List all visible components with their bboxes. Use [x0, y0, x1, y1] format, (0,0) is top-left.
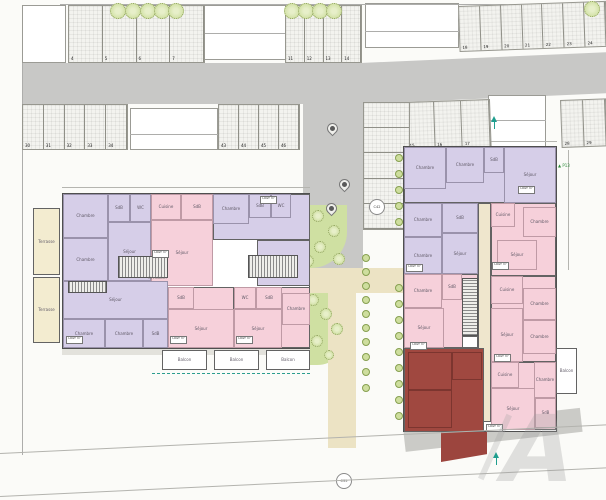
parking-stall-number: 44 — [241, 143, 246, 148]
path-vertical — [328, 293, 356, 448]
room-label: SdB — [490, 158, 498, 162]
parking-stall: 21 — [522, 4, 544, 49]
neighbor-line — [365, 31, 459, 32]
parking-stall-number: 7 — [172, 56, 175, 61]
shrub — [395, 364, 403, 372]
parking-stall-number: 29 — [586, 140, 591, 145]
room-label: Séjour — [195, 327, 208, 331]
unit — [408, 390, 452, 428]
room-label: Terrasse — [38, 308, 55, 312]
shrub — [395, 316, 403, 324]
room-label: Chambre — [76, 258, 94, 262]
tree — [312, 210, 324, 222]
neighbor-building — [22, 5, 66, 63]
tree — [584, 1, 600, 17]
stair-core — [118, 256, 168, 278]
parking-stall: 46 — [279, 105, 299, 149]
room-label: SdB — [448, 285, 456, 289]
pin-dot — [328, 205, 335, 212]
room-sdb: SdB — [143, 319, 168, 348]
room-chambre: Chambre — [523, 207, 556, 237]
shrub — [395, 284, 403, 292]
stair-core — [462, 278, 478, 336]
room-label: Chambre — [287, 307, 305, 311]
stair-core — [68, 281, 107, 293]
parking-stall: 14 — [342, 6, 361, 62]
unit — [452, 352, 482, 380]
unit-label-box: LOGT m² — [170, 336, 187, 344]
parking-stall: 45 — [259, 105, 279, 149]
shrub — [362, 353, 370, 361]
parking-stall: 31 — [44, 105, 65, 149]
parking-stall: 23 — [563, 3, 585, 48]
unit-label-box: LOGT m² — [492, 262, 509, 270]
room-balcon: Balcon — [162, 350, 207, 370]
parking-stall: 34 — [106, 105, 127, 149]
tree — [320, 308, 332, 320]
unit-label-box: LOGT m² — [260, 196, 277, 204]
room-label: Séjour — [454, 252, 467, 256]
room-label: Balcon — [560, 369, 574, 373]
room-terrasse: Terrasse — [33, 277, 60, 343]
room-label: Chambre — [115, 332, 133, 336]
room-label: Balcon — [230, 358, 244, 362]
parking-stall-number: 24 — [587, 40, 592, 45]
parking-stall-number: 12 — [307, 56, 312, 61]
unit-label-box: LOGT m² — [494, 354, 511, 362]
room-sjour: Séjour — [442, 233, 478, 274]
arrow-stem — [494, 122, 495, 129]
room-label: Séjour — [511, 253, 524, 257]
room-cuisine: Cuisine — [491, 276, 523, 304]
neighbor-line — [200, 33, 286, 34]
parking-stall-number: 23 — [567, 41, 572, 46]
dim-line — [62, 187, 310, 188]
parking-stall: 32 — [65, 105, 86, 149]
room-label: SdB — [115, 206, 123, 210]
parking-stall: 18 — [459, 6, 481, 51]
parking-stall-number: 13 — [326, 56, 331, 61]
parking-stall: 22 — [542, 3, 564, 48]
stalls-28-29: 2829 — [560, 98, 606, 148]
site-plan-canvas: 4567111213141819202122232430313233344344… — [0, 0, 606, 500]
room-chambre: Chambre — [404, 203, 442, 237]
unit-label-box: LOGT m² — [236, 336, 253, 344]
shrub — [395, 396, 403, 404]
neighbor-building — [365, 3, 459, 48]
tree — [168, 3, 184, 19]
tree — [125, 3, 141, 19]
tree — [328, 225, 340, 237]
shrub — [362, 254, 370, 262]
parking-stall-number: 30 — [25, 143, 30, 148]
room-label: Chambre — [530, 220, 548, 224]
shrub — [395, 202, 403, 210]
unit — [462, 336, 478, 348]
room-label: SdB — [193, 205, 201, 209]
shrub — [362, 324, 370, 332]
parking-stall-number: 22 — [546, 42, 551, 47]
shrub — [362, 338, 370, 346]
room-wc: WC — [234, 287, 256, 309]
room-chambre: Chambre — [213, 194, 249, 224]
plan-text: Circulation — [148, 277, 167, 281]
room-label: Séjour — [252, 327, 265, 331]
parking-stall-number: 11 — [288, 56, 293, 61]
room-sdb: SdB — [168, 287, 194, 309]
room-label: Balcon — [178, 358, 192, 362]
unit-label-box: LOGT m² — [152, 250, 169, 258]
room-balcon: Balcon — [266, 350, 310, 370]
parking-stall-number: 28 — [564, 141, 569, 146]
room-cuisine: Cuisine — [151, 194, 181, 220]
shrub — [362, 268, 370, 276]
parking-stall-number: 6 — [139, 56, 142, 61]
parking-stall-number: 21 — [525, 43, 530, 48]
room-label: Cuisine — [500, 288, 515, 292]
room-cuisine: Cuisine — [491, 203, 515, 227]
parking-stall: 20 — [501, 5, 523, 50]
dim-line — [568, 150, 569, 270]
room-label: WC — [137, 206, 144, 210]
parking-stall: 19 — [480, 6, 502, 51]
room-label: Séjour — [501, 333, 514, 337]
parking-stall: 29 — [583, 99, 606, 146]
unit-label-box: LOGT m² — [410, 342, 427, 350]
shrub — [395, 332, 403, 340]
tree — [110, 3, 126, 19]
room-label: Balcon — [281, 358, 295, 362]
shrub — [395, 154, 403, 162]
stalls-43-46: 43444546 — [218, 104, 300, 150]
room-label: Chambre — [456, 163, 474, 167]
shrub — [395, 412, 403, 420]
room-balcon: Balcon — [556, 348, 577, 394]
room-label: Chambre — [414, 289, 432, 293]
parking-stall-number: 32 — [67, 143, 72, 148]
parking-stall: 33 — [85, 105, 106, 149]
room-label: Chambre — [530, 302, 548, 306]
unit-label-box: LOGT m² — [518, 186, 535, 194]
room-label: SdB — [265, 296, 273, 300]
shrub — [395, 186, 403, 194]
room-chambre: Chambre — [282, 293, 310, 325]
stalls-30-34: 3031323334 — [22, 104, 128, 150]
road-top-left — [22, 63, 365, 104]
pin-dot — [341, 181, 348, 188]
room-label: Cuisine — [496, 213, 511, 217]
room-chambre: Chambre — [105, 319, 143, 348]
stalls-15-17: 151617 — [405, 99, 492, 150]
room-balcon: Balcon — [214, 350, 259, 370]
room-label: Séjour — [176, 251, 189, 255]
room-chambre: Chambre — [523, 288, 556, 320]
room-label: WC — [242, 296, 249, 300]
room-label: SdB — [256, 204, 264, 208]
shrub — [362, 310, 370, 318]
room-sdb: SdB — [256, 287, 282, 309]
parking-stall: 44 — [239, 105, 259, 149]
room-terrasse: Terrasse — [33, 208, 60, 275]
neighbor-building — [130, 108, 218, 150]
parking-stall-number: 43 — [221, 143, 226, 148]
tree — [311, 335, 323, 347]
limit-dashed-line — [152, 373, 310, 374]
room-sdb: SdB — [484, 147, 504, 173]
room-label: Séjour — [418, 326, 431, 330]
room-cuisine: Cuisine — [491, 362, 519, 388]
room-chambre: Chambre — [63, 194, 108, 238]
parking-stall: 16 — [434, 101, 463, 148]
shrub — [395, 300, 403, 308]
room-chambre: Chambre — [63, 238, 108, 281]
unit-label-box: LOGT m² — [406, 264, 423, 272]
tree — [333, 253, 345, 265]
neighbor-line — [130, 134, 218, 135]
room-label: Chambre — [76, 214, 94, 218]
room-label: Chambre — [222, 207, 240, 211]
room-label: Chambre — [414, 218, 432, 222]
parking-stall-number: 5 — [105, 56, 108, 61]
room-label: Terrasse — [38, 240, 55, 244]
tree — [326, 3, 342, 19]
room-chambre: Chambre — [446, 147, 484, 183]
shrub — [395, 170, 403, 178]
room-label: Cuisine — [159, 205, 174, 209]
room-chambre: Chambre — [523, 320, 556, 354]
room-sdb: SdB — [181, 194, 213, 220]
room-label: SdB — [177, 296, 185, 300]
shrub — [395, 380, 403, 388]
shrub — [395, 218, 403, 226]
circle-marker: C42 — [369, 199, 385, 215]
parking-stall: 30 — [23, 105, 44, 149]
room-label: Chambre — [75, 332, 93, 336]
arrow-stem — [496, 458, 497, 465]
parking-stall: 15 — [406, 102, 435, 149]
room-label: Séjour — [123, 250, 136, 254]
circle-marker-label: C42 — [374, 205, 381, 209]
room-label: Chambre — [530, 335, 548, 339]
room-label: Séjour — [524, 173, 537, 177]
stair-core — [248, 255, 298, 278]
shrub — [362, 384, 370, 392]
room-label: Chambre — [536, 378, 554, 382]
room-chambre: Chambre — [404, 274, 442, 308]
parking-stall — [364, 103, 409, 128]
room-chambre: Chambre — [404, 147, 446, 189]
room-label: SdB — [456, 216, 464, 220]
shrub — [362, 282, 370, 290]
room-label: Chambre — [414, 254, 432, 258]
parking-stall-number: 19 — [483, 44, 488, 49]
parking-stall-number: 20 — [504, 43, 509, 48]
path-horizontal — [303, 268, 405, 293]
room-sdb: SdB — [442, 203, 478, 233]
shrub — [362, 368, 370, 376]
parking-stall: 28 — [561, 100, 585, 147]
room-label: Chambre — [416, 166, 434, 170]
room-sdb: SdB — [442, 274, 462, 300]
room-label: Séjour — [109, 298, 122, 302]
room-label: WC — [278, 204, 285, 208]
room-chambre: Chambre — [534, 362, 556, 398]
unit-label-box: LOGT m² — [66, 336, 83, 344]
room-sjour: Séjour — [504, 147, 556, 203]
parking-stall: 17 — [461, 100, 490, 147]
room-label: SdB — [152, 332, 160, 336]
unit — [408, 352, 452, 390]
parking-stall-number: 14 — [344, 56, 349, 61]
parking-stall-number: 45 — [261, 143, 266, 148]
tree — [324, 350, 334, 360]
tree — [331, 323, 343, 335]
parking-stall: 43 — [219, 105, 239, 149]
parking-stall-number: 46 — [281, 143, 286, 148]
tree — [314, 241, 326, 253]
pin-dot — [329, 125, 336, 132]
shrub — [395, 348, 403, 356]
room-wc: WC — [130, 194, 151, 222]
parking-stall-number: 31 — [46, 143, 51, 148]
parking-stall-number: 33 — [87, 143, 92, 148]
road-top-right — [360, 52, 606, 104]
room-sdb: SdB — [108, 194, 130, 222]
tree-point-label: ▲ P13 — [558, 163, 570, 168]
parking-stall-number: 18 — [462, 45, 467, 50]
shrub — [362, 296, 370, 304]
parking-stall-number: 34 — [108, 143, 113, 148]
room-label: Cuisine — [498, 373, 513, 377]
parking-stall: 4 — [69, 6, 103, 62]
parking-stall-number: 4 — [71, 56, 74, 61]
